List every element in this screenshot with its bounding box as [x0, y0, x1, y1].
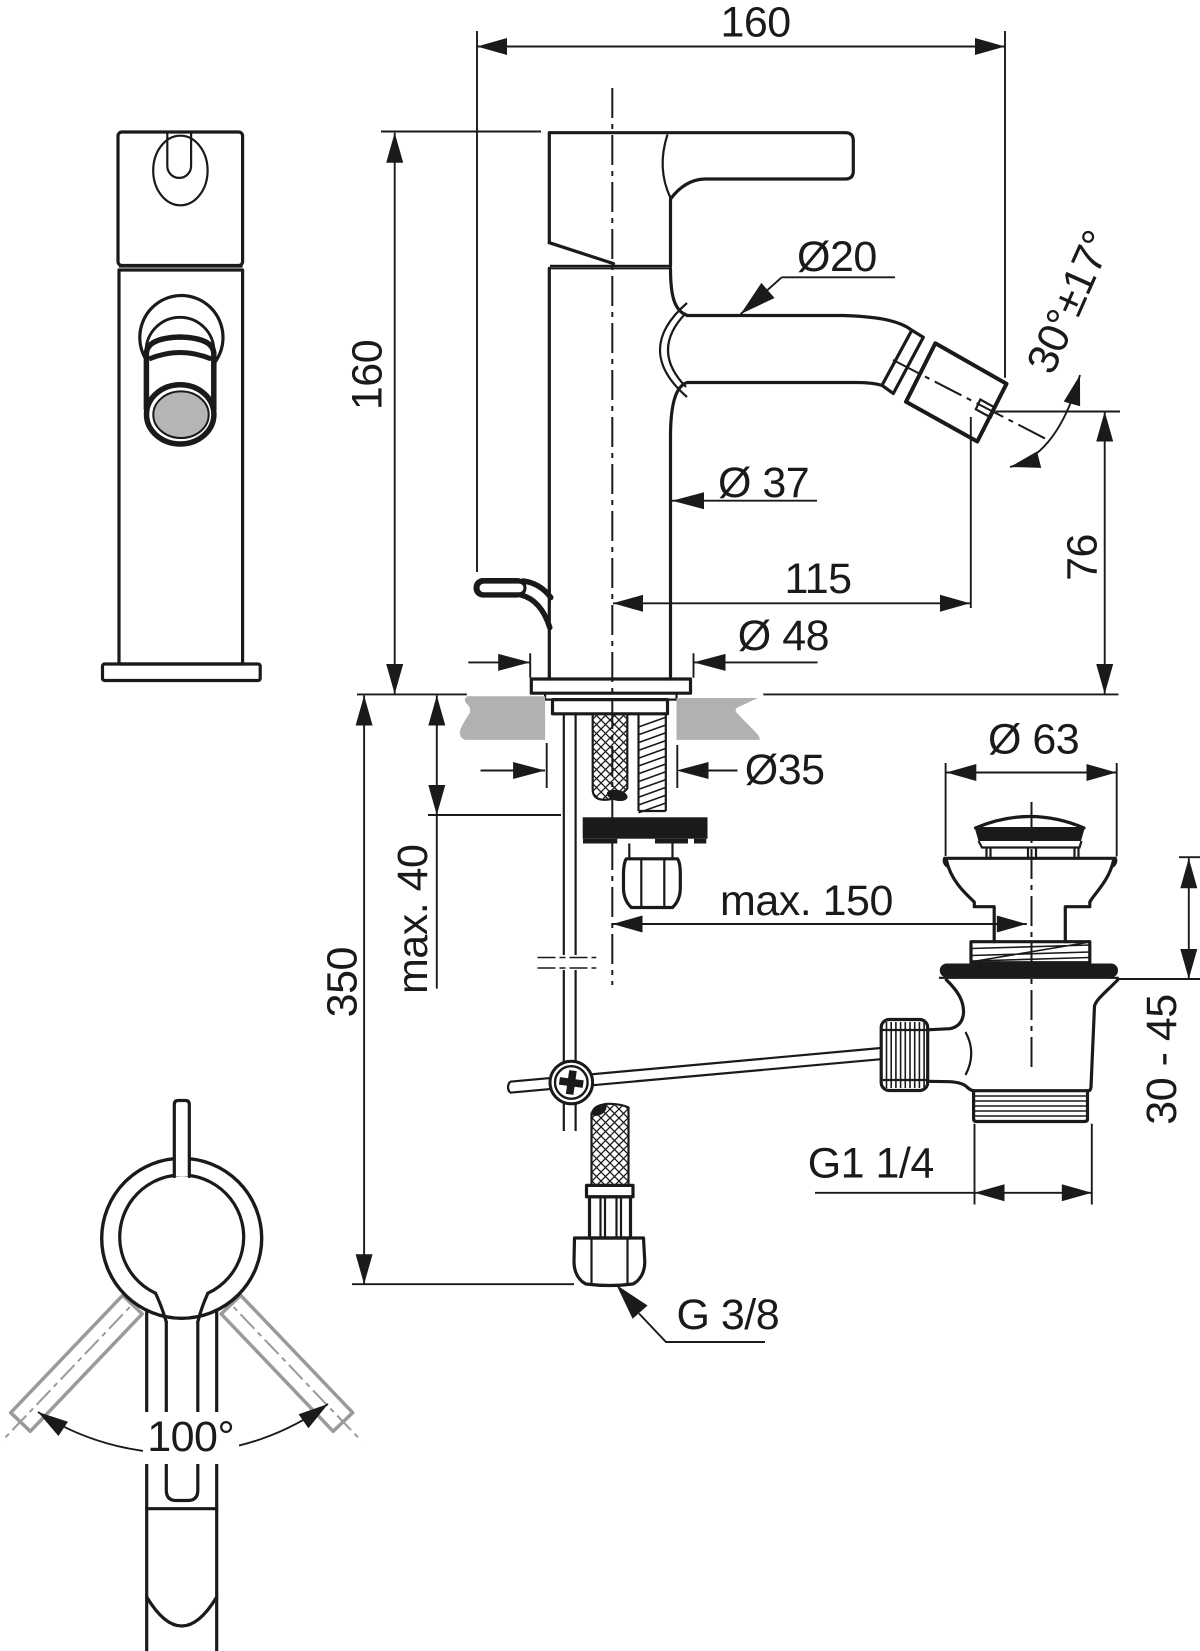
- svg-text:G 3/8: G 3/8: [677, 1291, 780, 1339]
- svg-text:max. 150: max. 150: [720, 877, 893, 925]
- svg-text:Ø35: Ø35: [745, 746, 825, 794]
- svg-text:76: 76: [1059, 534, 1107, 581]
- svg-text:160: 160: [720, 0, 790, 47]
- svg-text:Ø20: Ø20: [797, 233, 877, 281]
- svg-text:350: 350: [319, 947, 367, 1017]
- svg-text:160: 160: [344, 340, 392, 410]
- svg-text:Ø 37: Ø 37: [718, 459, 809, 507]
- svg-text:100°: 100°: [147, 1413, 234, 1461]
- svg-text:30 - 45: 30 - 45: [1138, 994, 1186, 1124]
- svg-text:115: 115: [784, 555, 851, 603]
- svg-text:Ø 48: Ø 48: [738, 612, 829, 660]
- svg-text:Ø 63: Ø 63: [988, 716, 1079, 764]
- svg-text:G1 1/4: G1 1/4: [808, 1140, 934, 1188]
- svg-text:max. 40: max. 40: [389, 845, 437, 994]
